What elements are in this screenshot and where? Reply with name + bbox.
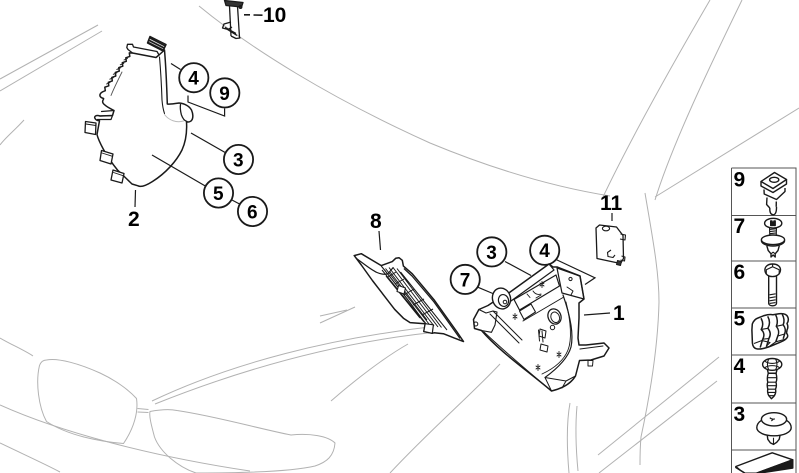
svg-text:4: 4	[539, 241, 550, 262]
svg-text:8: 8	[370, 210, 382, 233]
svg-text:5: 5	[213, 184, 224, 205]
svg-text:4: 4	[188, 69, 199, 90]
svg-text:9: 9	[734, 169, 746, 192]
svg-text:6: 6	[247, 202, 258, 223]
svg-text:4: 4	[734, 355, 746, 378]
svg-text:7: 7	[460, 270, 471, 291]
svg-text:7: 7	[734, 215, 746, 238]
svg-text:3: 3	[734, 403, 746, 426]
svg-text:M: M	[770, 221, 775, 228]
svg-text:10: 10	[263, 4, 286, 27]
svg-text:11: 11	[600, 192, 623, 215]
svg-text:1: 1	[613, 302, 625, 325]
svg-text:2: 2	[128, 208, 140, 231]
svg-text:6: 6	[734, 261, 746, 284]
svg-text:3: 3	[233, 150, 244, 171]
svg-text:9: 9	[219, 84, 230, 105]
svg-text:3: 3	[486, 243, 497, 264]
svg-text:5: 5	[734, 308, 746, 331]
